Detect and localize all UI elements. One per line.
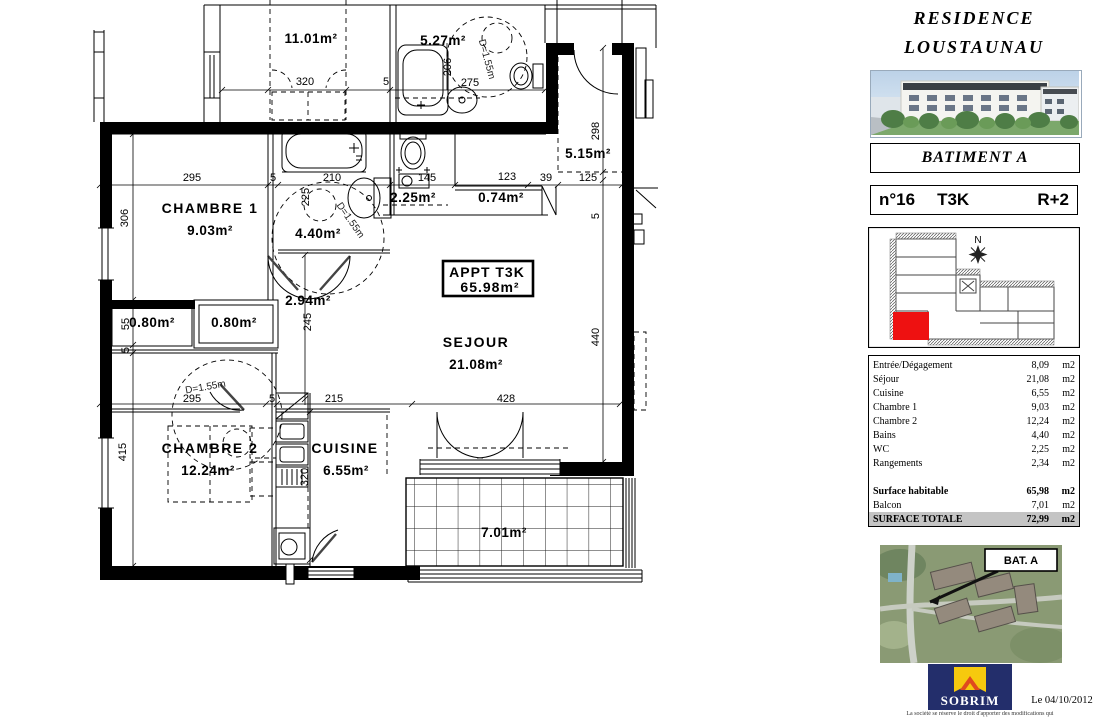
dim-top-275: 275 [461,77,479,89]
apt-type-label: APPT T3K [449,264,525,280]
stairwell-elements [630,48,658,244]
table-row-habitable: Surface habitable65,98m2 [869,484,1079,498]
bains-area: 4.40m² [295,226,341,241]
balcon-area: 7.01m² [481,525,527,540]
dim-left-306: 306 [119,209,131,227]
dim-right-298: 298 [590,122,602,140]
table-row: WC2,25m2 [869,442,1079,456]
surface-table: Entrée/Dégagement8,09m2 Séjour21,08m2 Cu… [868,355,1080,527]
neighbor-walls [94,0,656,122]
building-photo [870,70,1082,138]
dim-inner-245: 245 [302,313,314,331]
unit-info-box: n°16 T3K R+2 [870,185,1078,215]
sejour-area: 21.08m² [449,357,503,372]
dim-right-5: 5 [590,213,602,219]
table-row: Chambre 19,03m2 [869,400,1079,414]
neighbor-bath-area: 5.27m² [420,33,466,48]
window-openings [98,228,354,578]
chambre1-label: CHAMBRE 1 [162,200,259,216]
sejour-label: SEJOUR [443,334,510,350]
dim-mid-125: 125 [579,172,597,184]
degagement-area: 2.94m² [285,293,331,308]
chambre2-area: 12.24m² [181,463,235,478]
keyplan-box: N [868,227,1080,348]
placard2-area: 0.80m² [211,315,257,330]
table-row: Bains4,40m2 [869,428,1079,442]
neighbor-bath-fixtures [395,17,543,115]
batiment-label-box: BATIMENT A [870,143,1080,173]
aerial-photo: BAT. A [880,545,1062,663]
dim-bot-428: 428 [497,393,515,405]
table-row-balcon: Balcon7,01m2 [869,498,1079,512]
dashed-guides [168,48,646,528]
unit-floor: R+2 [1037,190,1069,210]
rangement-area: 0.74m² [478,190,524,205]
dim-right-440: 440 [590,328,602,346]
table-row: Cuisine6,55m2 [869,386,1079,400]
keyplan-highlight-unit [893,312,929,340]
project-title-line1: RESIDENCE [868,4,1080,33]
dim-left-5: 5 [120,347,132,353]
dim-top-320: 320 [296,76,314,88]
dim-mid-225: 225 [300,188,312,206]
sobrim-logo: SOBRIM [928,664,1012,710]
placard1-area: 0.80m² [129,315,175,330]
cuisine-area: 6.55m² [323,463,369,478]
table-row: Chambre 212,24m2 [869,414,1079,428]
table-row: Rangements2,34m2 [869,456,1079,470]
table-spacer [869,470,1079,484]
unit-number: n°16 [879,190,915,210]
disclaimer-text: La société se réserve le droit d'apporte… [878,711,1082,717]
dim-inner-320: 320 [299,468,311,486]
svg-text:N: N [974,235,981,246]
plan-sheet: 320 5 206 275 295 5 210 225 145 123 39 1… [0,0,1104,720]
bat-a-label: BAT. A [1004,555,1038,567]
neighbor-room-area: 11.01m² [284,31,337,46]
project-title-line2: LOUSTAUNAU [868,33,1080,62]
wc-area: 2.25m² [390,190,436,205]
table-row: Séjour21,08m2 [869,372,1079,386]
dim-mid-123: 123 [498,171,516,183]
dim-mid-39: 39 [540,172,552,184]
dim-mid-295: 295 [183,172,201,184]
chambre2-label: CHAMBRE 2 [162,440,259,456]
dim-mid-5: 5 [270,172,276,184]
batiment-label: BATIMENT A [922,149,1029,167]
entree-area: 5.15m² [565,146,611,161]
chambre1-area: 9.03m² [187,223,233,238]
diameter-note-chambre2: D=1.55m [184,379,226,397]
dim-top-5: 5 [383,76,389,88]
project-title: RESIDENCE LOUSTAUNAU [868,4,1080,62]
dim-top-206: 206 [442,58,454,76]
dim-bot-215: 215 [325,393,343,405]
dim-mid-210: 210 [323,172,341,184]
table-row-total: SURFACE TOTALE72,99m2 [869,512,1079,526]
kitchen-fixtures [274,393,310,584]
diameter-note-neighbor: D=1.55m [476,38,497,80]
dim-left-415: 415 [117,443,129,461]
sobrim-logo-text: SOBRIM [941,693,1000,708]
cuisine-label: CUISINE [311,440,378,456]
table-row: Entrée/Dégagement8,09m2 [869,358,1079,372]
unit-type: T3K [937,190,969,210]
apt-area-label: 65.98m² [460,279,519,295]
floorplan-drawing: 320 5 206 275 295 5 210 225 145 123 39 1… [0,0,860,720]
date-label: Le 04/10/2012 [1022,695,1102,706]
dim-bot-5: 5 [269,393,275,405]
apartment-label-box: APPT T3K 65.98m² [443,261,533,296]
dim-mid-145: 145 [418,172,436,184]
